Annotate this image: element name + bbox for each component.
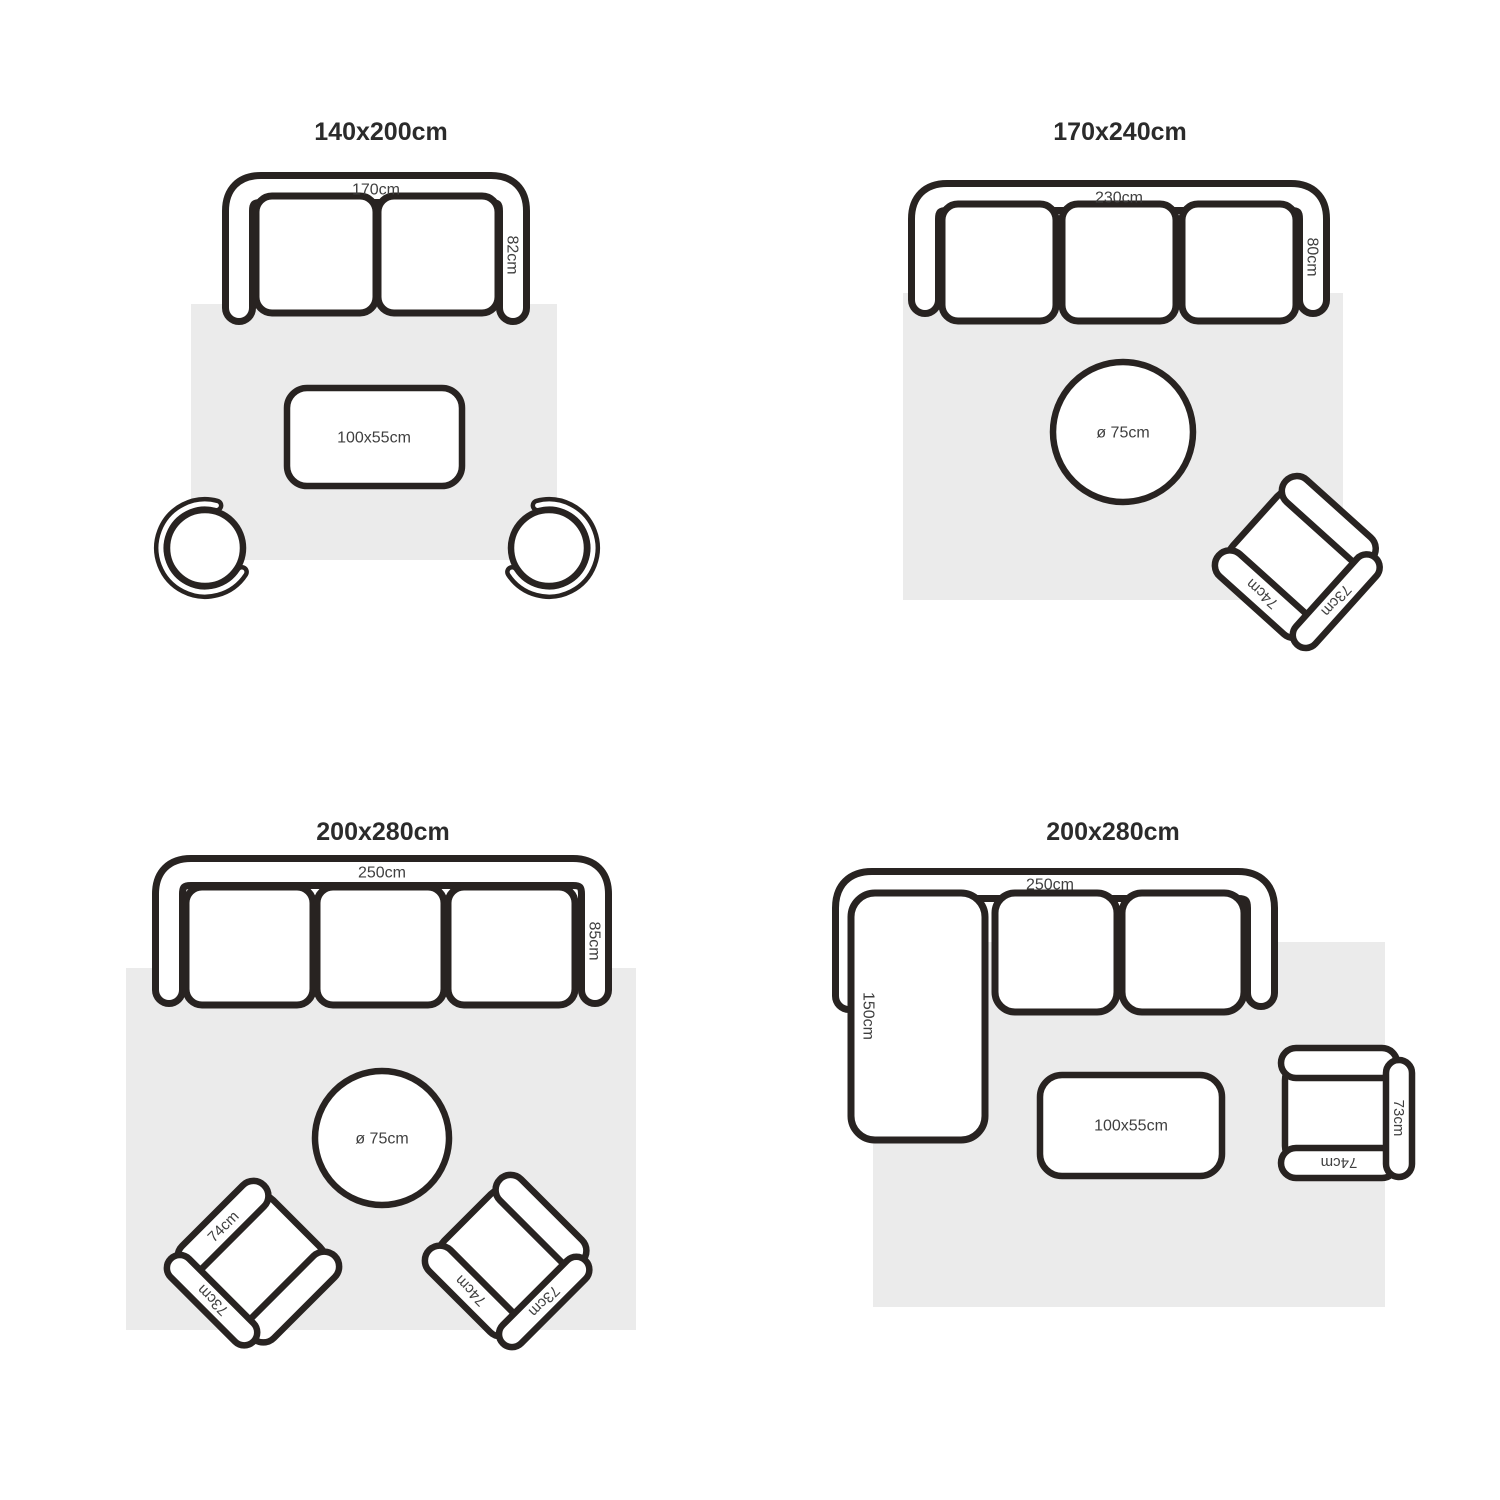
sofa-cushion bbox=[256, 196, 376, 313]
panel-200x280-sectional: 200x280cm 250cm 150cm 100x55cm 73cm 74cm bbox=[849, 818, 1412, 1307]
sofa-3-seat: 250cm 85cm bbox=[169, 865, 602, 1005]
sofa-cushion bbox=[378, 196, 498, 313]
sofa-cushion bbox=[1122, 893, 1244, 1012]
panel-title: 140x200cm bbox=[314, 118, 447, 146]
coffee-table-label: 100x55cm bbox=[1094, 1118, 1168, 1135]
panel-title: 170x240cm bbox=[1053, 118, 1186, 146]
armchair-arm-label: 74cm bbox=[1321, 1154, 1358, 1171]
sofa-cushion bbox=[1062, 204, 1176, 321]
rug-size-guide-canvas: 140x200cm 170cm 82cm 100x55cm bbox=[0, 0, 1500, 1500]
armchair: 73cm 74cm bbox=[1281, 1048, 1412, 1178]
sofa-2-seat: 170cm 82cm bbox=[239, 182, 520, 313]
coffee-table-rect: 100x55cm bbox=[287, 388, 462, 486]
chair-seat bbox=[511, 510, 587, 586]
sofa-3-seat: 230cm 80cm bbox=[925, 190, 1320, 321]
panel-200x280-armchairs: 200x280cm 250cm 85cm ø 75cm 73cm 74cm bbox=[126, 818, 636, 1359]
sofa-cushion bbox=[317, 887, 444, 1005]
sofa-width-label: 230cm bbox=[1095, 190, 1143, 207]
sofa-depth-label: 82cm bbox=[503, 235, 520, 274]
rug-size-guide: 140x200cm 170cm 82cm 100x55cm bbox=[0, 0, 1500, 1500]
sofa-width-label: 250cm bbox=[1026, 877, 1074, 894]
sofa-cushion bbox=[448, 887, 575, 1005]
sofa-cushion bbox=[186, 887, 313, 1005]
coffee-table-label: 100x55cm bbox=[337, 430, 411, 447]
sofa-width-label: 250cm bbox=[358, 865, 406, 882]
panel-140x200: 140x200cm 170cm 82cm 100x55cm bbox=[161, 118, 593, 592]
sofa-depth-label: 85cm bbox=[585, 921, 602, 960]
sofa-width-label: 170cm bbox=[352, 182, 400, 199]
panel-title: 200x280cm bbox=[316, 818, 449, 846]
sofa-cushion bbox=[942, 204, 1056, 321]
coffee-table-rect: 100x55cm bbox=[1040, 1075, 1222, 1176]
coffee-table-round: ø 75cm bbox=[315, 1071, 449, 1205]
armchair-arm-top bbox=[1281, 1048, 1397, 1078]
round-chair-right bbox=[511, 504, 593, 592]
sofa-cushion bbox=[1182, 204, 1296, 321]
chair-seat bbox=[167, 510, 243, 586]
sofa-chaise-label: 150cm bbox=[859, 992, 876, 1040]
coffee-table-round: ø 75cm bbox=[1053, 362, 1193, 502]
sofa-depth-label: 80cm bbox=[1303, 237, 1320, 276]
sofa-cushion bbox=[995, 893, 1117, 1012]
coffee-table-label: ø 75cm bbox=[355, 1131, 408, 1148]
coffee-table-label: ø 75cm bbox=[1096, 425, 1149, 442]
panel-170x240: 170x240cm 230cm 80cm ø 75cm 73cm 74cm bbox=[903, 118, 1393, 654]
round-chair-left bbox=[161, 504, 243, 592]
panel-title: 200x280cm bbox=[1046, 818, 1179, 846]
armchair-back-label: 73cm bbox=[1390, 1100, 1407, 1137]
